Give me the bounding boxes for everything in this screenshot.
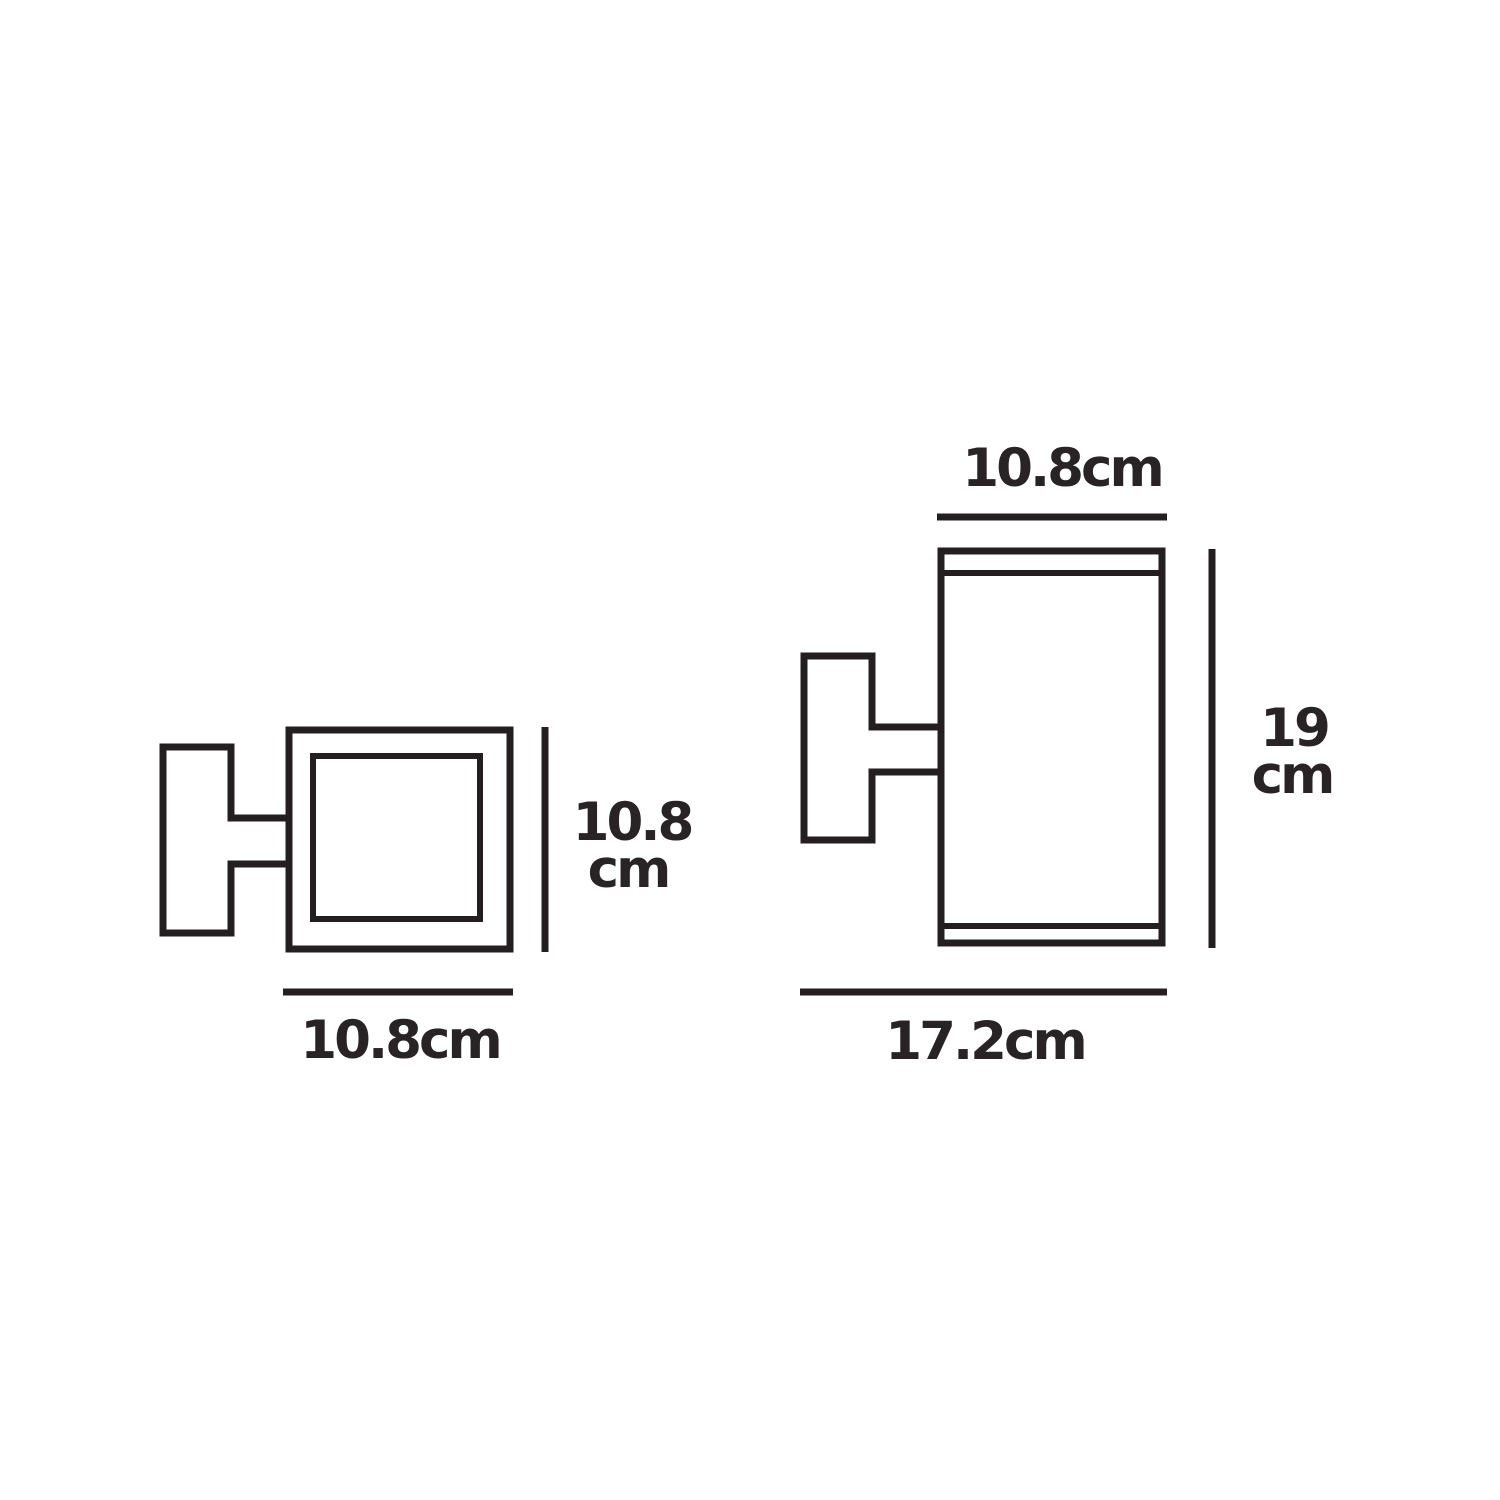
- front-view-shapes: [163, 727, 545, 992]
- dimension-diagram: 10.8 cm 10.8cm 10.8cm 19 cm 17.2cm: [0, 0, 1500, 1500]
- front-view-mount-bracket: [163, 747, 289, 933]
- wall-light-dimension-drawing: 10.8 cm 10.8cm 10.8cm 19 cm 17.2cm: [0, 0, 1500, 1500]
- side-view-height-unit-label: cm: [1252, 745, 1333, 806]
- side-view-mount-bracket: [804, 656, 941, 840]
- side-view-shapes: [800, 517, 1212, 992]
- front-view-width-label: 10.8cm: [300, 1010, 499, 1071]
- front-view-height-unit-label: cm: [588, 839, 669, 900]
- side-view-body: [941, 551, 1162, 943]
- front-view-inner-frame: [313, 756, 480, 919]
- side-view-top-width-label: 10.8cm: [962, 438, 1161, 499]
- side-view-total-width-label: 17.2cm: [885, 1011, 1084, 1072]
